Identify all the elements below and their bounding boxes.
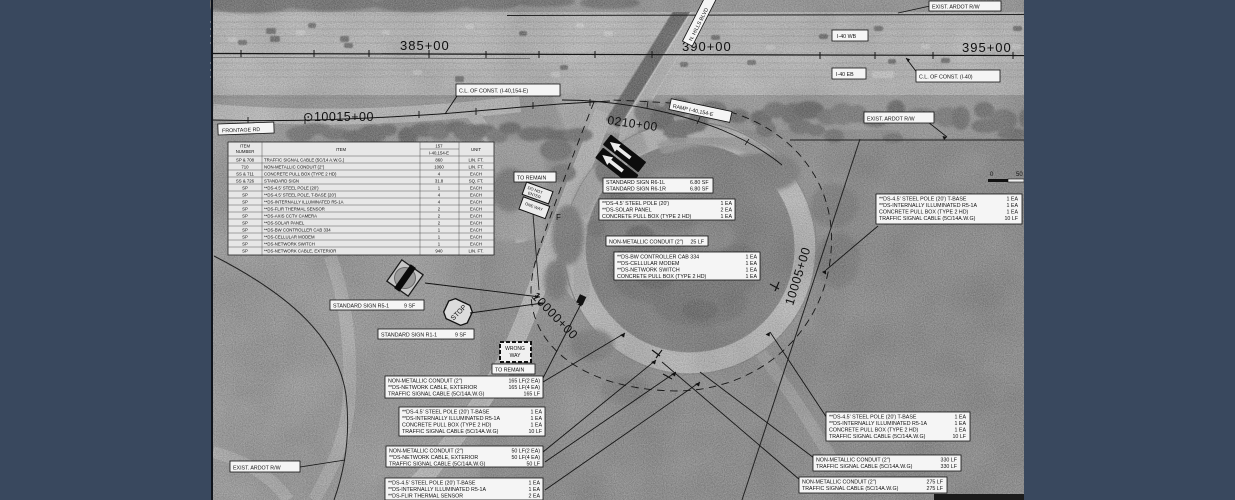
svg-text:C.L. OF CONST. (I-40): C.L. OF CONST. (I-40) xyxy=(919,75,973,81)
svg-text:31.8: 31.8 xyxy=(435,179,444,184)
svg-text:SP & 708: SP & 708 xyxy=(236,158,255,163)
svg-text:TRAFFIC SIGNAL CABLE (5C/14A.W: TRAFFIC SIGNAL CABLE (5C/14A.W.G) xyxy=(402,429,499,435)
svg-text:**DS-INTERNALLY ILLUMINATED R5: **DS-INTERNALLY ILLUMINATED R5-1A xyxy=(879,203,977,209)
svg-text:1 EA: 1 EA xyxy=(531,410,543,416)
svg-text:STANDARD SIGN R1-1: STANDARD SIGN R1-1 xyxy=(381,333,437,339)
svg-text:**DS-4.5' STEEL POLE, T-BASE (: **DS-4.5' STEEL POLE, T-BASE (20') xyxy=(264,193,337,198)
svg-text:LIN. FT.: LIN. FT. xyxy=(468,249,483,254)
svg-text:I-40,154-E: I-40,154-E xyxy=(429,151,449,156)
svg-text:1 EA: 1 EA xyxy=(531,423,543,429)
svg-text:F: F xyxy=(556,213,561,222)
svg-text:1 EA: 1 EA xyxy=(1007,203,1019,209)
svg-text:10 LF: 10 LF xyxy=(952,434,966,440)
svg-text:1 EA: 1 EA xyxy=(1007,197,1019,203)
svg-text:6.80 SF: 6.80 SF xyxy=(690,187,709,193)
svg-text:TRAFFIC SIGNAL CABLE (5C/14 A.: TRAFFIC SIGNAL CABLE (5C/14 A.W.G.) xyxy=(264,158,345,163)
svg-text:WRONG: WRONG xyxy=(505,346,525,352)
svg-text:NUMBER: NUMBER xyxy=(236,149,255,154)
svg-text:EACH: EACH xyxy=(470,200,482,205)
svg-text:**DS-INTERNALLY ILLUMINATED R5: **DS-INTERNALLY ILLUMINATED R5-1A xyxy=(264,200,344,205)
svg-text:NON-METALLIC CONDUIT (2"): NON-METALLIC CONDUIT (2") xyxy=(388,379,463,385)
svg-text:NON-METALLIC CONDUIT (2"): NON-METALLIC CONDUIT (2") xyxy=(816,458,891,464)
svg-text:TO REMAIN: TO REMAIN xyxy=(495,368,525,374)
svg-text:**DS-INTERNALLY ILLUMINATED R5: **DS-INTERNALLY ILLUMINATED R5-1A xyxy=(388,487,486,493)
svg-text:SP: SP xyxy=(242,242,248,247)
svg-text:395+00: 395+00 xyxy=(962,40,1012,55)
svg-text:2 EA: 2 EA xyxy=(721,208,733,214)
svg-text:TRAFFIC SIGNAL CABLE (5C/14A.W: TRAFFIC SIGNAL CABLE (5C/14A.W.G) xyxy=(829,434,926,440)
svg-text:⊙10015+00: ⊙10015+00 xyxy=(303,110,374,124)
svg-text:50 LF(2 EA): 50 LF(2 EA) xyxy=(511,449,540,455)
svg-text:1 EA: 1 EA xyxy=(1007,210,1019,216)
svg-text:EXIST. ARDOT R/W: EXIST. ARDOT R/W xyxy=(867,117,915,123)
svg-text:SP: SP xyxy=(242,193,248,198)
svg-text:EACH: EACH xyxy=(470,228,482,233)
svg-text:SP: SP xyxy=(242,207,248,212)
svg-text:EXIST. ARDOT R/W: EXIST. ARDOT R/W xyxy=(932,5,980,11)
svg-text:NON-METALLIC CONDUIT (2"): NON-METALLIC CONDUIT (2") xyxy=(389,449,464,455)
svg-text:275 LF: 275 LF xyxy=(927,480,944,486)
svg-text:1 EA: 1 EA xyxy=(955,421,967,427)
svg-text:**DS-INTERNALLY ILLUMINATED R5: **DS-INTERNALLY ILLUMINATED R5-1A xyxy=(402,416,500,422)
svg-text:6.80 SF: 6.80 SF xyxy=(690,180,709,186)
svg-text:STANDARD SIGN R5-1: STANDARD SIGN R5-1 xyxy=(333,304,389,310)
svg-text:**DS-BW CONTROLLER CAB 334: **DS-BW CONTROLLER CAB 334 xyxy=(264,228,331,233)
svg-text:1 EA: 1 EA xyxy=(746,274,758,280)
svg-text:TRAFFIC SIGNAL CABLE (5C/14A.W: TRAFFIC SIGNAL CABLE (5C/14A.W.G) xyxy=(879,216,976,222)
svg-text:157: 157 xyxy=(435,144,443,149)
svg-text:**DS-4.5' STEEL POLE (20') T-B: **DS-4.5' STEEL POLE (20') T-BASE xyxy=(829,415,917,421)
svg-text:WAY: WAY xyxy=(510,353,521,359)
svg-text:ITEM: ITEM xyxy=(336,147,347,152)
svg-text:ITEM: ITEM xyxy=(240,144,251,149)
svg-text:**DS-NETWORK CABLE, EXTERIOR: **DS-NETWORK CABLE, EXTERIOR xyxy=(389,455,478,461)
svg-text:**DS-NETWORK CABLE, EXTERIOR: **DS-NETWORK CABLE, EXTERIOR xyxy=(388,385,477,391)
svg-text:**DS-CELLULAR MODEM: **DS-CELLULAR MODEM xyxy=(264,235,315,240)
svg-text:TRAFFIC SIGNAL CABLE (5C/14A.W: TRAFFIC SIGNAL CABLE (5C/14A.W.G) xyxy=(389,462,486,468)
svg-text:EACH: EACH xyxy=(470,242,482,247)
svg-text:1 EA: 1 EA xyxy=(531,416,543,422)
svg-text:**DS-4.5' STEEL POLE (20') T-B: **DS-4.5' STEEL POLE (20') T-BASE xyxy=(879,197,967,203)
svg-text:9 SF: 9 SF xyxy=(404,304,416,310)
svg-text:EACH: EACH xyxy=(470,186,482,191)
svg-text:CONCRETE PULL BOX (TYPE 2 HD): CONCRETE PULL BOX (TYPE 2 HD) xyxy=(602,214,692,220)
svg-text:SP: SP xyxy=(242,249,248,254)
svg-text:NON-METALLIC CONDUIT (2"): NON-METALLIC CONDUIT (2") xyxy=(264,165,325,170)
svg-text:1 EA: 1 EA xyxy=(955,415,967,421)
svg-text:860: 860 xyxy=(435,158,443,163)
svg-text:1 EA: 1 EA xyxy=(746,255,758,261)
svg-text:1 EA: 1 EA xyxy=(529,487,541,493)
svg-text:**DS-AXIS CCTV CAMERA: **DS-AXIS CCTV CAMERA xyxy=(264,214,317,219)
svg-text:**DS-4.5' STEEL POLE (20') T-B: **DS-4.5' STEEL POLE (20') T-BASE xyxy=(388,481,476,487)
svg-text:NON-METALLIC CONDUIT (2"): NON-METALLIC CONDUIT (2") xyxy=(609,240,684,246)
svg-text:**DS-4.5' STEEL POLE (20'): **DS-4.5' STEEL POLE (20') xyxy=(264,186,319,191)
svg-text:STANDARD SIGN R6-1L: STANDARD SIGN R6-1L xyxy=(606,180,665,186)
svg-text:EACH: EACH xyxy=(470,235,482,240)
svg-text:330 LF: 330 LF xyxy=(941,458,958,464)
svg-text:**DS-NETWORK SWITCH: **DS-NETWORK SWITCH xyxy=(617,268,680,274)
svg-text:EXIST. ARDOT R/W: EXIST. ARDOT R/W xyxy=(233,466,281,472)
svg-text:10 LF: 10 LF xyxy=(1004,216,1018,222)
svg-text:1 EA: 1 EA xyxy=(746,261,758,267)
svg-text:1 EA: 1 EA xyxy=(721,214,733,220)
svg-text:165 LF(2 EA): 165 LF(2 EA) xyxy=(508,379,540,385)
svg-text:2 EA: 2 EA xyxy=(529,494,541,500)
svg-text:**DS-NETWORK CABLE, EXTERIOR: **DS-NETWORK CABLE, EXTERIOR xyxy=(264,249,336,254)
svg-text:C.L. OF CONST. (I-40,154-E): C.L. OF CONST. (I-40,154-E) xyxy=(459,89,528,95)
svg-text:SP: SP xyxy=(242,221,248,226)
svg-text:**DS-CELLULAR MODEM: **DS-CELLULAR MODEM xyxy=(617,261,679,267)
svg-text:165 LF(4 EA): 165 LF(4 EA) xyxy=(508,385,540,391)
svg-text:50: 50 xyxy=(1016,172,1023,178)
svg-text:LIN. FT.: LIN. FT. xyxy=(468,165,483,170)
svg-text:CONCRETE PULL BOX (TYPE 2 HD): CONCRETE PULL BOX (TYPE 2 HD) xyxy=(829,428,919,434)
svg-text:SP: SP xyxy=(242,235,248,240)
svg-text:TO REMAIN: TO REMAIN xyxy=(517,176,547,182)
svg-text:UNIT: UNIT xyxy=(471,147,481,152)
svg-text:CONCRETE PULL BOX (TYPE 2 HD): CONCRETE PULL BOX (TYPE 2 HD) xyxy=(617,274,707,280)
svg-text:SS & 711: SS & 711 xyxy=(236,172,254,177)
svg-text:TRAFFIC SIGNAL CABLE (5C/14A.W: TRAFFIC SIGNAL CABLE (5C/14A.W.G) xyxy=(802,486,899,492)
svg-text:I-40 EB: I-40 EB xyxy=(836,72,854,78)
svg-text:275 LF: 275 LF xyxy=(927,486,944,492)
svg-text:SP: SP xyxy=(242,186,248,191)
svg-text:I-40 WB: I-40 WB xyxy=(837,34,857,40)
svg-text:1 EA: 1 EA xyxy=(529,481,541,487)
svg-text:**DS-FLIR THERMAL SENSOR: **DS-FLIR THERMAL SENSOR xyxy=(388,494,463,500)
svg-text:**DS-SOLAR PANEL: **DS-SOLAR PANEL xyxy=(264,221,305,226)
svg-text:1060: 1060 xyxy=(434,165,444,170)
svg-text:385+00: 385+00 xyxy=(400,38,450,53)
svg-text:EACH: EACH xyxy=(470,172,482,177)
svg-text:STANDARD SIGN: STANDARD SIGN xyxy=(264,179,299,184)
svg-text:**DS-4.5' STEEL POLE (20'): **DS-4.5' STEEL POLE (20') xyxy=(602,201,669,207)
svg-text:SP: SP xyxy=(242,200,248,205)
svg-text:EACH: EACH xyxy=(470,221,482,226)
svg-text:TRAFFIC SIGNAL CABLE (5C/14A.W: TRAFFIC SIGNAL CABLE (5C/14A.W.G) xyxy=(388,392,485,398)
svg-text:EACH: EACH xyxy=(470,214,482,219)
svg-text:25 LF: 25 LF xyxy=(690,240,704,246)
svg-text:CONCRETE PULL BOX (TYPE 2 HD): CONCRETE PULL BOX (TYPE 2 HD) xyxy=(402,423,492,429)
svg-text:330 LF: 330 LF xyxy=(941,464,958,470)
svg-text:SQ. FT.: SQ. FT. xyxy=(469,179,484,184)
svg-text:1 EA: 1 EA xyxy=(955,428,967,434)
svg-text:**DS-4.5' STEEL POLE (20') T-B: **DS-4.5' STEEL POLE (20') T-BASE xyxy=(402,410,490,416)
svg-text:**DS-FLIR THERMAL SENSOR: **DS-FLIR THERMAL SENSOR xyxy=(264,207,325,212)
svg-text:LIN. FT.: LIN. FT. xyxy=(468,158,483,163)
svg-text:**DS-NETWORK SWITCH: **DS-NETWORK SWITCH xyxy=(264,242,315,247)
svg-text:165 LF: 165 LF xyxy=(524,392,541,398)
svg-text:9 SF: 9 SF xyxy=(455,333,467,339)
svg-text:**DS-INTERNALLY ILLUMINATED R5: **DS-INTERNALLY ILLUMINATED R5-1A xyxy=(829,421,927,427)
svg-text:50 LF(4 EA): 50 LF(4 EA) xyxy=(511,455,540,461)
svg-text:EACH: EACH xyxy=(470,193,482,198)
svg-text:TRAFFIC SIGNAL CABLE (5C/14A.W: TRAFFIC SIGNAL CABLE (5C/14A.W.G) xyxy=(816,464,913,470)
svg-text:CONCRETE PULL BOX (TYPE 2 HD): CONCRETE PULL BOX (TYPE 2 HD) xyxy=(264,172,337,177)
svg-text:SP: SP xyxy=(242,214,248,219)
svg-text:SP: SP xyxy=(242,228,248,233)
svg-text:SS & 726: SS & 726 xyxy=(236,179,255,184)
svg-text:710: 710 xyxy=(241,165,249,170)
svg-text:CONCRETE PULL BOX (TYPE 2 HD): CONCRETE PULL BOX (TYPE 2 HD) xyxy=(879,210,969,216)
svg-text:50 LF: 50 LF xyxy=(526,462,540,468)
svg-text:1 EA: 1 EA xyxy=(721,201,733,207)
svg-text:**DS-BW CONTROLLER CAB 334: **DS-BW CONTROLLER CAB 334 xyxy=(617,255,699,261)
svg-text:STANDARD SIGN R6-1R: STANDARD SIGN R6-1R xyxy=(606,187,666,193)
svg-text:EACH: EACH xyxy=(470,207,482,212)
svg-text:**DS-SOLAR PANEL: **DS-SOLAR PANEL xyxy=(602,208,652,214)
svg-text:940: 940 xyxy=(435,249,443,254)
svg-text:10 LF: 10 LF xyxy=(528,429,542,435)
svg-text:1 EA: 1 EA xyxy=(746,268,758,274)
svg-text:NON-METALLIC CONDUIT (2"): NON-METALLIC CONDUIT (2") xyxy=(802,480,877,486)
